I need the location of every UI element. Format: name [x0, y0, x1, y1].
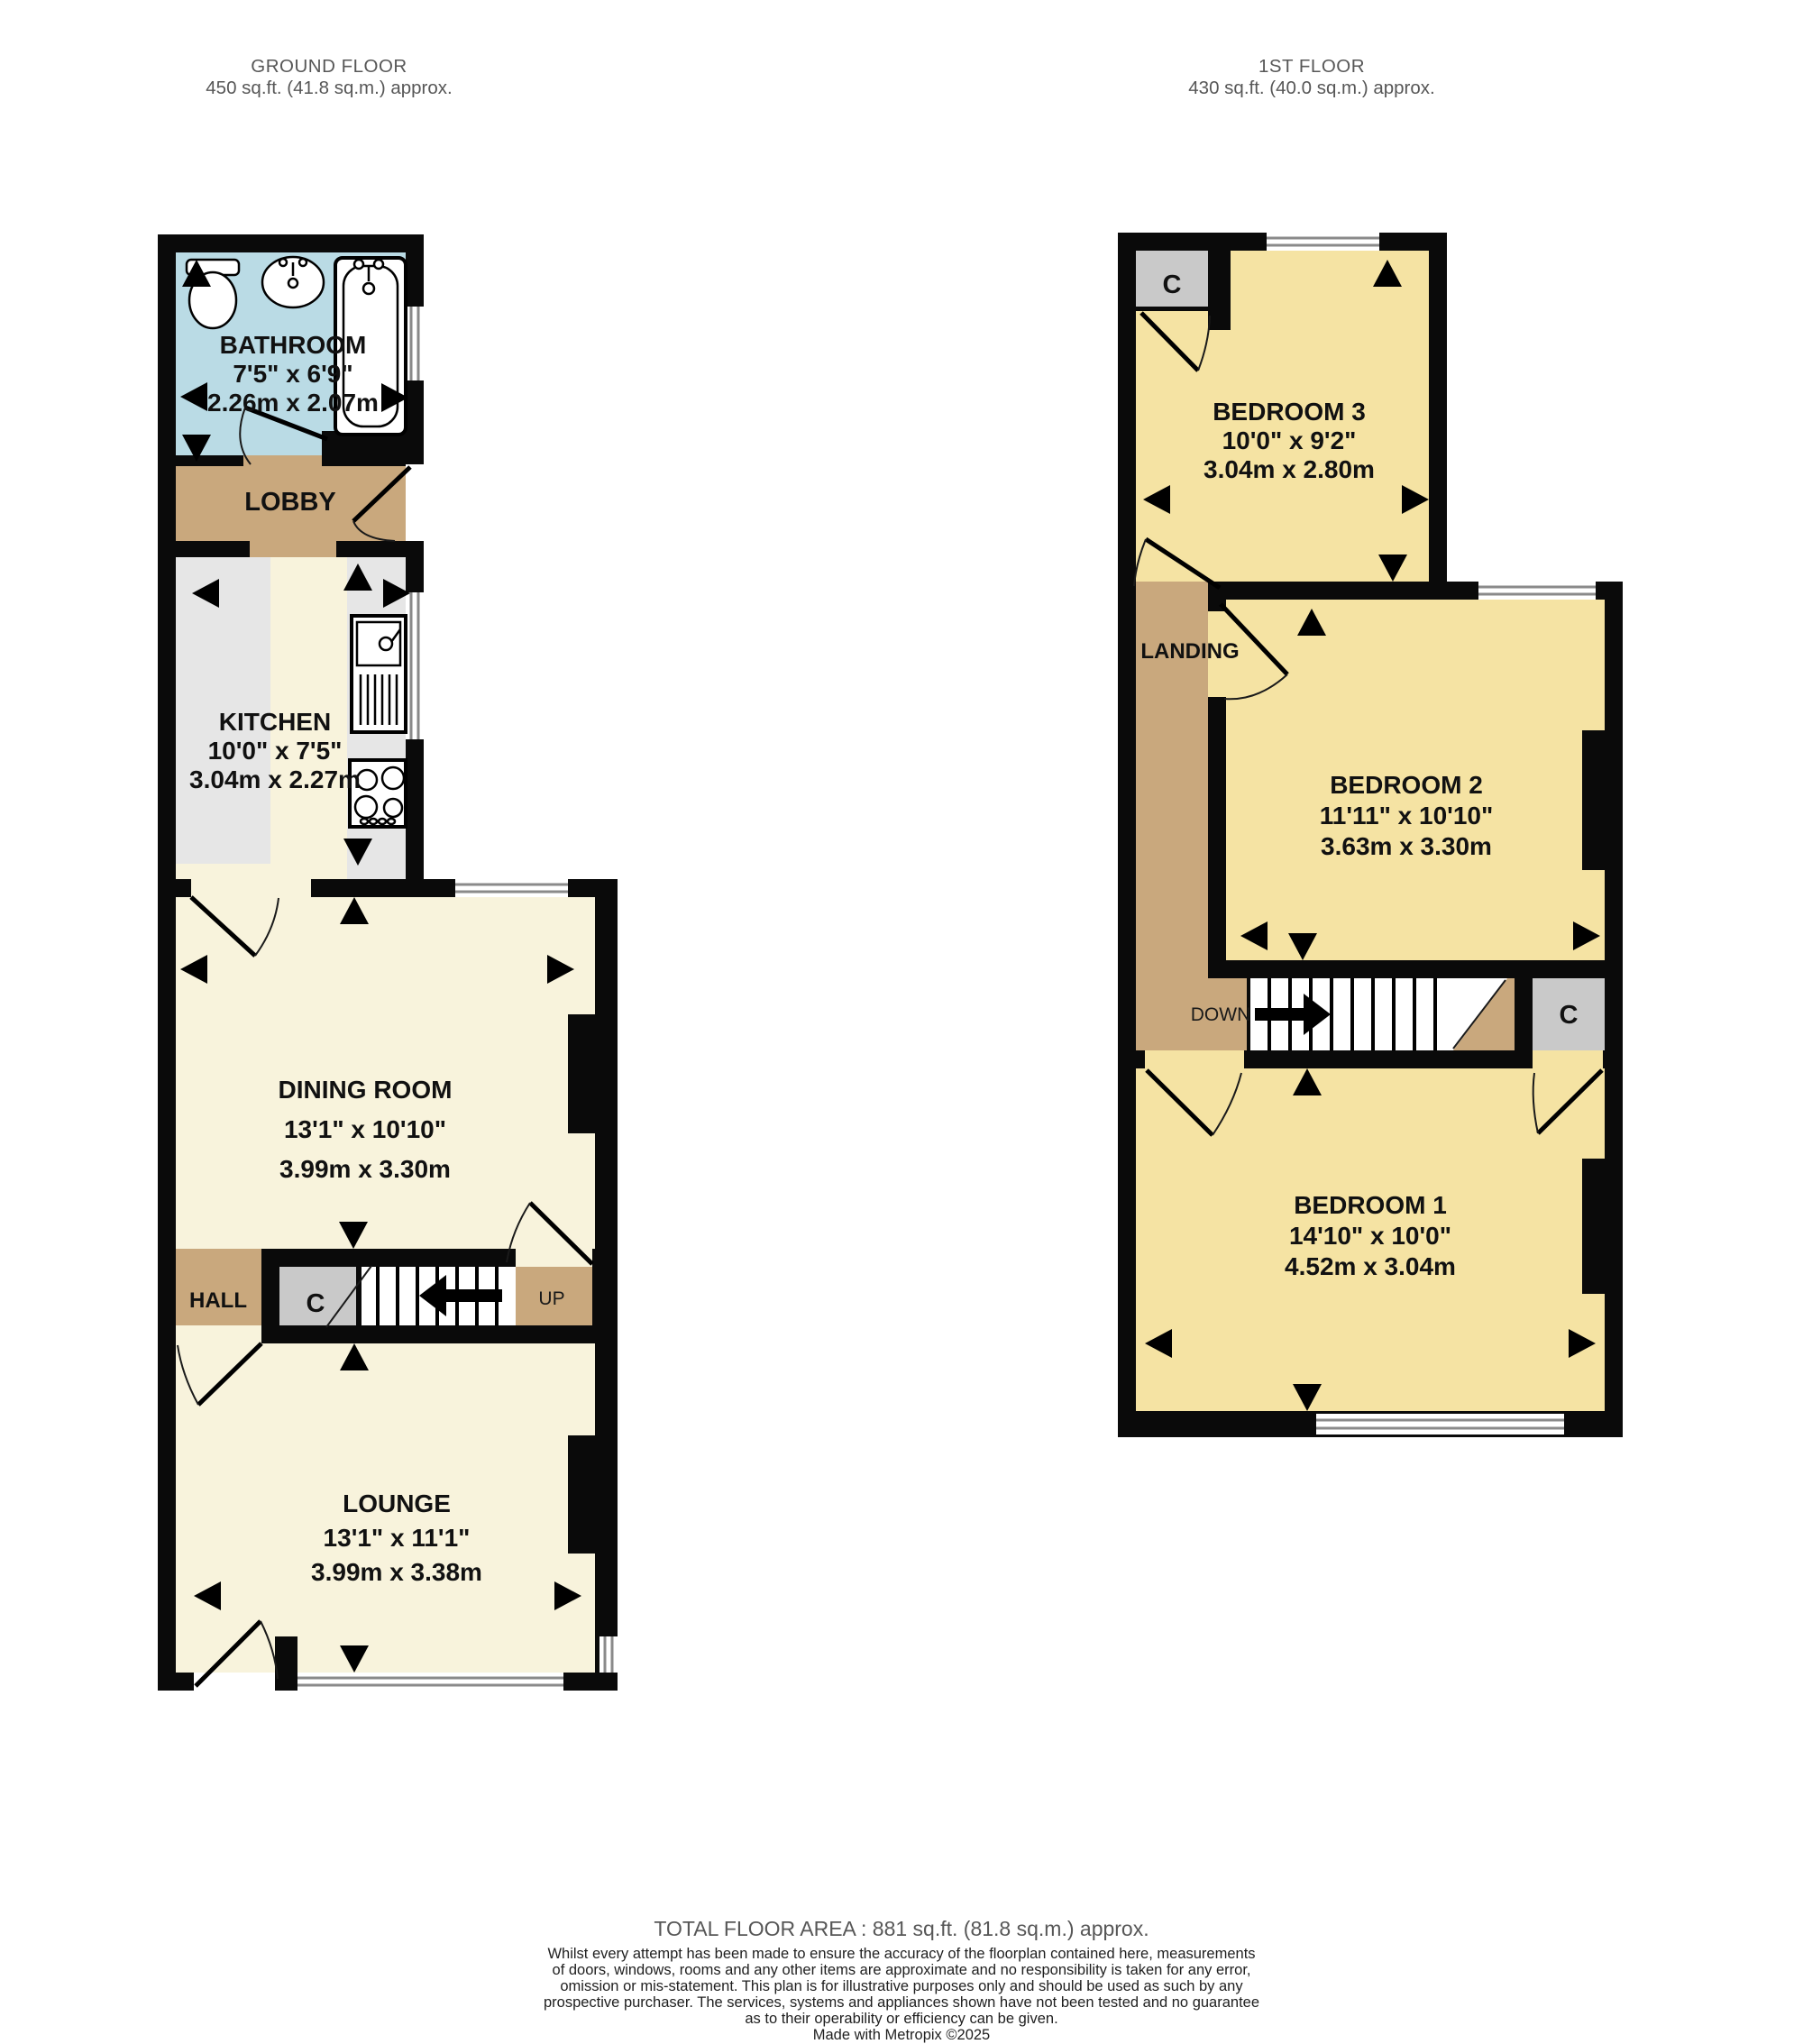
disclaimer-line: Whilst every attempt has been made to en…	[0, 1946, 1803, 1962]
window	[455, 879, 568, 897]
floorplan-drawing: BATHROOM 7'5" x 6'9" 2.26m x 2.07m LOBBY…	[0, 0, 1803, 2044]
wall-stub	[261, 1249, 279, 1343]
bedroom1-label: BEDROOM 1	[1294, 1191, 1447, 1219]
hall-label: HALL	[189, 1288, 247, 1313]
doorway	[1145, 1050, 1244, 1068]
chimney-breast	[568, 1435, 618, 1554]
disclaimer-line: prospective purchaser. The services, sys…	[0, 1994, 1803, 2011]
dining-dims-imperial: 13'1" x 10'10"	[284, 1115, 446, 1143]
closet-top-label: C	[1163, 270, 1182, 299]
bedroom1-dims-imperial: 14'10" x 10'0"	[1289, 1222, 1451, 1250]
chimney-breast	[1582, 1159, 1623, 1294]
stairs-down-label: DOWN	[1191, 1004, 1251, 1025]
kitchen-sink-unit	[352, 616, 406, 732]
window	[1316, 1414, 1564, 1434]
lounge-dims-metric: 3.99m x 3.38m	[311, 1558, 482, 1586]
landing-label: LANDING	[1140, 639, 1239, 664]
doorway	[191, 879, 311, 897]
bathroom-dims-imperial: 7'5" x 6'9"	[233, 360, 352, 388]
window	[1478, 582, 1596, 600]
closet-ground-label: C	[307, 1289, 325, 1318]
bedroom3-dims-metric: 3.04m x 2.80m	[1204, 455, 1375, 483]
closet-right-label: C	[1560, 1001, 1579, 1030]
window	[406, 592, 424, 739]
disclaimer-line: of doors, windows, rooms and any other i…	[0, 1962, 1803, 1978]
bedroom1-dims-metric: 4.52m x 3.04m	[1285, 1252, 1456, 1280]
dining-dims-metric: 3.99m x 3.30m	[279, 1155, 451, 1183]
room-dining	[176, 897, 595, 1249]
chimney-breast	[1582, 730, 1623, 870]
disclaimer-line: omission or mis-statement. This plan is …	[0, 1978, 1803, 1994]
wall-stub	[275, 1636, 297, 1691]
doorway	[406, 464, 424, 541]
lounge-label: LOUNGE	[343, 1489, 451, 1517]
disclaimer-line: as to their operability or efficiency ca…	[0, 2011, 1803, 2027]
bedroom2-dims-imperial: 11'11" x 10'10"	[1320, 802, 1494, 830]
kitchen-dims-imperial: 10'0" x 7'5"	[208, 737, 343, 765]
doorway	[243, 455, 322, 466]
window	[1267, 233, 1379, 251]
sink-basin	[262, 257, 324, 307]
bathroom-label: BATHROOM	[220, 331, 367, 359]
bathroom-dims-metric: 2.26m x 2.07m	[207, 389, 379, 417]
bedroom3-label: BEDROOM 3	[1213, 398, 1366, 426]
bedroom2-label: BEDROOM 2	[1330, 771, 1483, 799]
ground-floor-plan: BATHROOM 7'5" x 6'9" 2.26m x 2.07m LOBBY…	[158, 234, 618, 1691]
dining-label: DINING ROOM	[279, 1076, 453, 1104]
wall-stub	[1208, 251, 1231, 330]
doorway	[250, 541, 336, 557]
bedroom3-dims-imperial: 10'0" x 9'2"	[1222, 426, 1357, 454]
metropix-credit: Made with Metropix ©2025	[0, 2027, 1803, 2043]
window	[406, 307, 424, 380]
bedroom2-dims-metric: 3.63m x 3.30m	[1321, 832, 1492, 860]
kitchen-dims-metric: 3.04m x 2.27m	[189, 765, 361, 793]
chimney-breast	[568, 1014, 618, 1133]
doorway	[1533, 1050, 1603, 1068]
window	[599, 1636, 618, 1673]
doorway	[176, 1325, 261, 1343]
first-floor-plan: C BEDROOM 3 10'0" x 9'2" 3.04m x 2.80m L…	[1118, 233, 1623, 1437]
wall-stub	[356, 1267, 362, 1325]
kitchen-label: KITCHEN	[219, 708, 331, 736]
disclaimer: Whilst every attempt has been made to en…	[0, 1946, 1803, 2043]
window-bay	[297, 1673, 563, 1691]
lobby-label: LOBBY	[244, 488, 336, 517]
floorplan-page: GROUND FLOOR 450 sq.ft. (41.8 sq.m.) app…	[0, 0, 1803, 2044]
lounge-dims-imperial: 13'1" x 11'1"	[324, 1524, 471, 1552]
total-floor-area: TOTAL FLOOR AREA : 881 sq.ft. (81.8 sq.m…	[0, 1917, 1803, 1941]
wall-stub	[1136, 307, 1208, 311]
stairs-up-label: UP	[538, 1288, 564, 1309]
